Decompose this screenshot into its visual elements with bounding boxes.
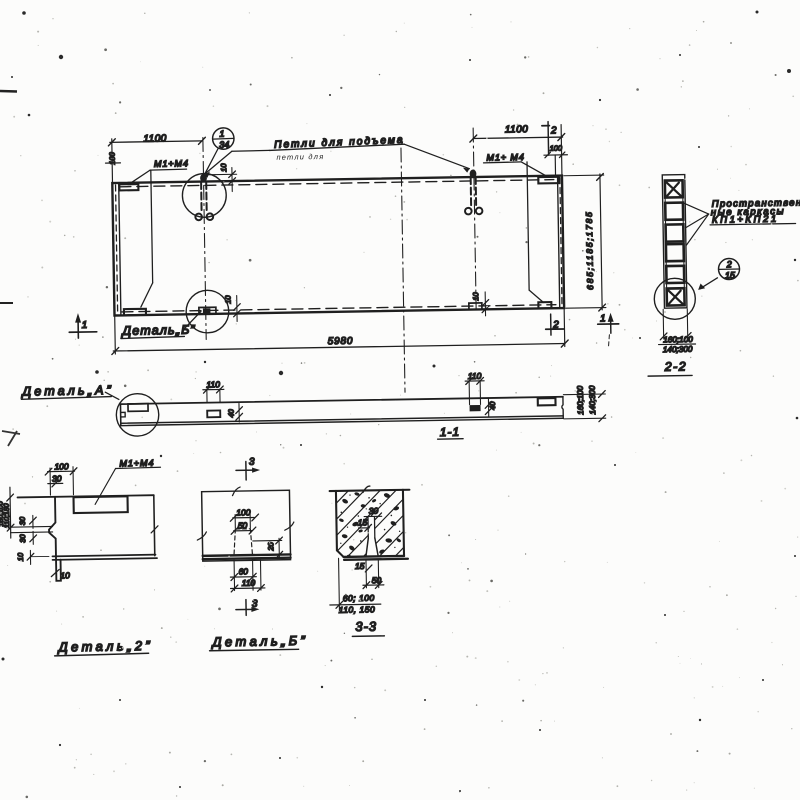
svg-text:1100: 1100 <box>505 124 529 135</box>
svg-text:140;300: 140;300 <box>663 345 693 354</box>
svg-text:Деталь„Б”: Деталь„Б” <box>120 323 196 338</box>
svg-text:685;1185;1785: 685;1185;1785 <box>584 210 595 290</box>
svg-text:15: 15 <box>725 270 736 280</box>
svg-text:10: 10 <box>471 291 480 300</box>
svg-text:30: 30 <box>18 516 27 525</box>
svg-text:1: 1 <box>219 129 224 139</box>
svg-text:30: 30 <box>18 533 27 542</box>
svg-text:34: 34 <box>219 140 229 150</box>
svg-text:10: 10 <box>219 163 228 172</box>
svg-text:60: 60 <box>238 566 248 576</box>
svg-text:160;100: 160;100 <box>663 335 693 344</box>
svg-text:2: 2 <box>550 125 557 136</box>
svg-text:петли для: петли для <box>276 152 324 162</box>
svg-text:2: 2 <box>726 259 732 269</box>
svg-text:50: 50 <box>238 520 248 530</box>
svg-text:100: 100 <box>236 507 251 517</box>
svg-text:110: 110 <box>242 578 256 588</box>
svg-text:2-2: 2-2 <box>664 360 688 374</box>
svg-text:40: 40 <box>227 408 236 417</box>
svg-text:160;100: 160;100 <box>576 385 585 415</box>
svg-text:110: 110 <box>468 371 482 381</box>
svg-text:2: 2 <box>552 320 559 331</box>
svg-text:140;300: 140;300 <box>588 385 597 415</box>
svg-text:1: 1 <box>82 320 88 331</box>
svg-text:15: 15 <box>358 517 368 527</box>
svg-text:М1÷М4: М1÷М4 <box>154 158 189 169</box>
svg-text:60; 100: 60; 100 <box>343 593 375 604</box>
svg-text:1: 1 <box>600 313 606 324</box>
svg-text:1100: 1100 <box>143 133 167 144</box>
svg-text:40: 40 <box>488 401 497 410</box>
svg-text:3: 3 <box>252 599 258 610</box>
svg-text:100: 100 <box>54 461 69 471</box>
svg-text:5980: 5980 <box>328 336 354 347</box>
svg-text:Деталь„Б”: Деталь„Б” <box>210 633 308 650</box>
svg-text:110: 110 <box>206 379 220 389</box>
svg-text:15: 15 <box>355 561 365 571</box>
svg-text:1-1: 1-1 <box>440 425 461 439</box>
svg-text:М1÷ М4: М1÷ М4 <box>486 152 525 163</box>
svg-text:10: 10 <box>223 295 232 304</box>
svg-text:10: 10 <box>16 552 25 561</box>
svg-text:110, 150: 110, 150 <box>339 604 376 615</box>
svg-text:110;180: 110;180 <box>4 503 11 528</box>
svg-text:М1÷М4: М1÷М4 <box>119 458 154 469</box>
svg-text:100: 100 <box>549 144 562 153</box>
svg-text:3: 3 <box>249 457 255 468</box>
svg-text:10: 10 <box>60 570 70 580</box>
svg-text:20: 20 <box>266 541 275 551</box>
svg-text:3-3: 3-3 <box>355 619 377 634</box>
svg-text:Деталь„2”: Деталь„2” <box>56 638 153 655</box>
